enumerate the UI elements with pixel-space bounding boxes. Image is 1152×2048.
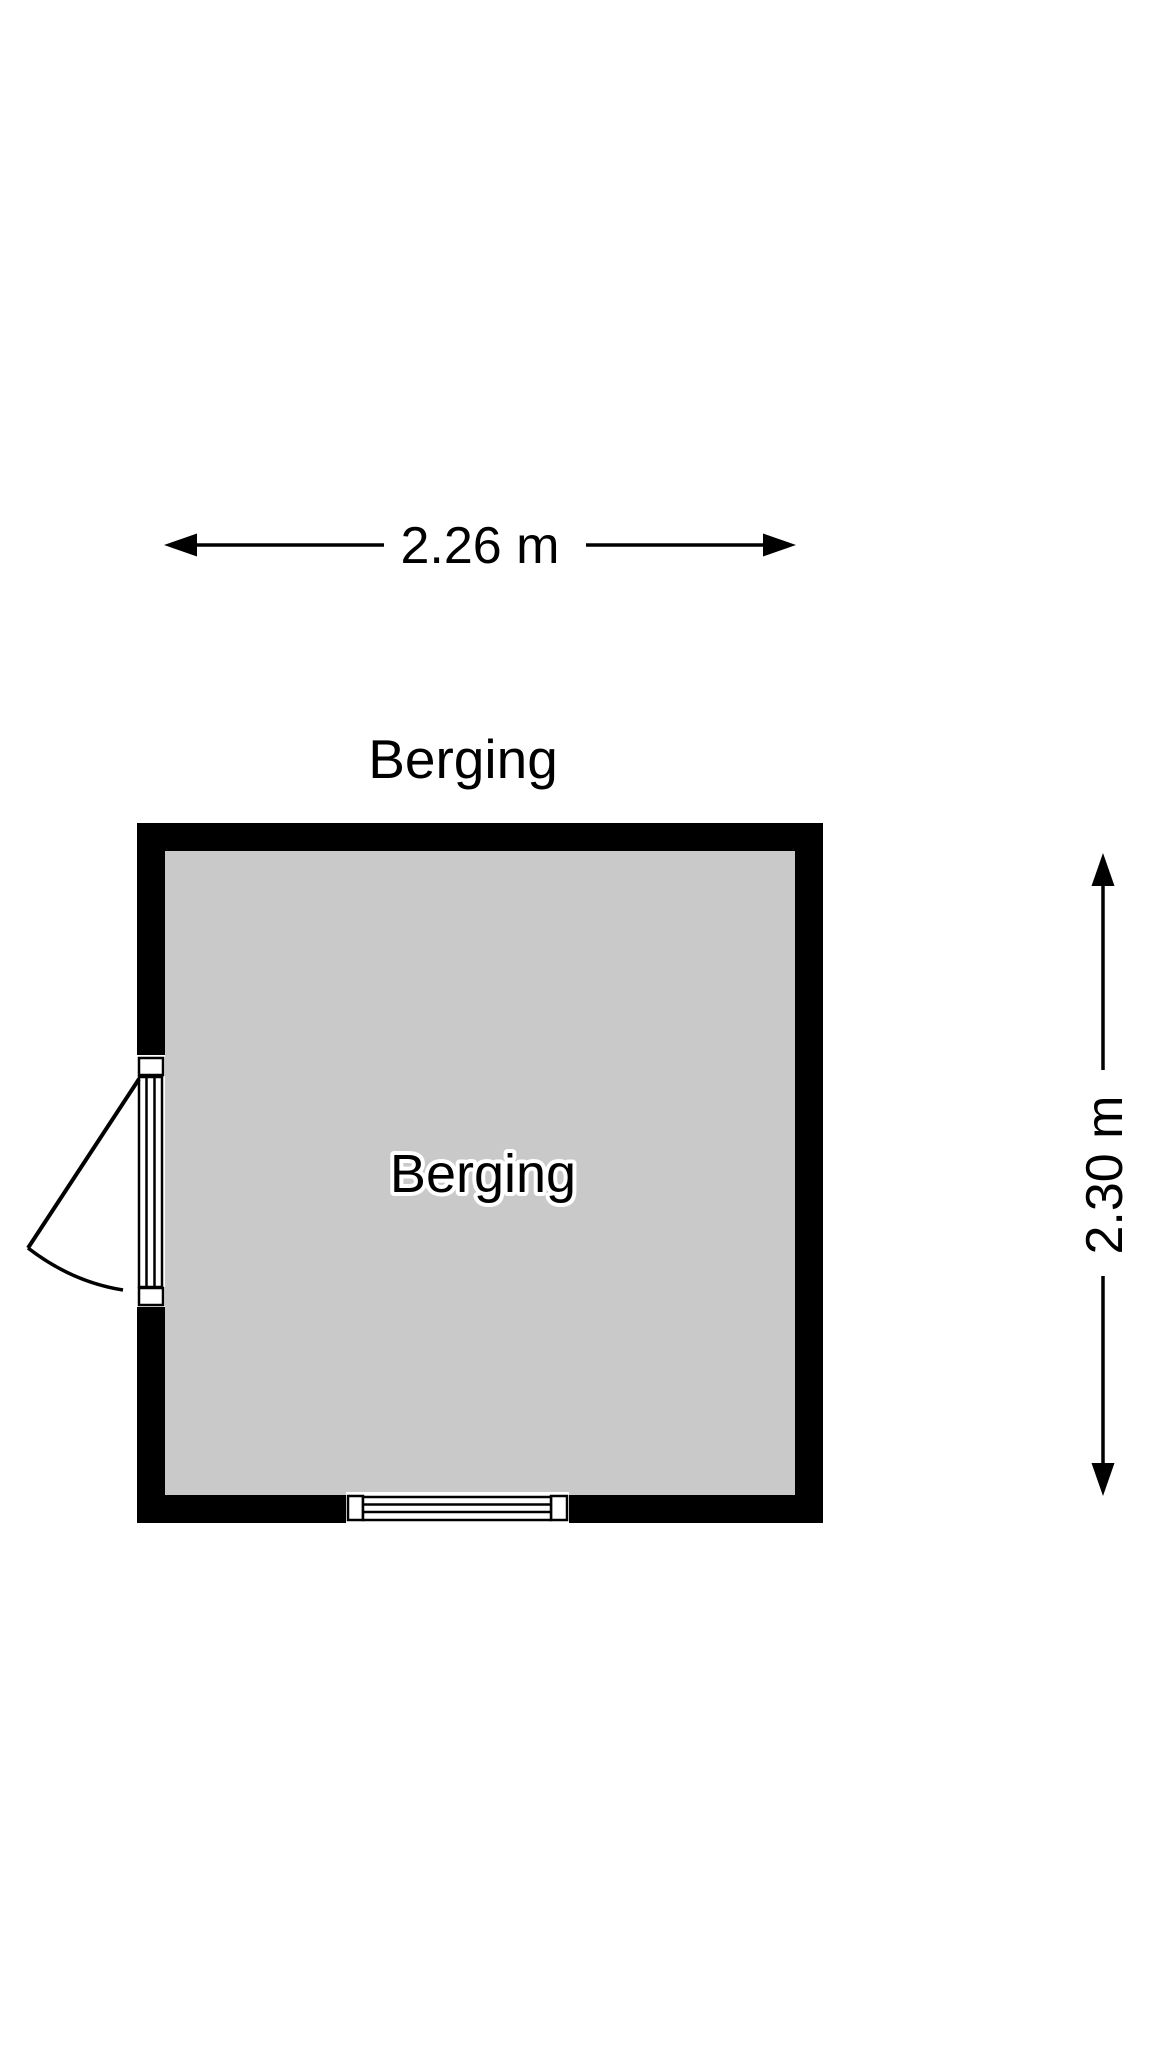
floorplan-canvas: 2.26 m 2.30 m Berging Berging	[0, 0, 1152, 2048]
height-dimension: 2.30 m	[1076, 853, 1134, 1496]
arrow-down-icon	[1092, 1463, 1115, 1496]
door-panel	[139, 1077, 162, 1287]
width-dimension: 2.26 m	[164, 517, 796, 575]
plan-title: Berging	[368, 728, 558, 790]
window-frame-cap-right	[551, 1496, 567, 1520]
door-frame-cap-bottom	[139, 1288, 163, 1305]
height-dimension-label: 2.30 m	[1076, 1096, 1134, 1255]
arrow-up-icon	[1092, 853, 1115, 886]
window	[346, 1492, 569, 1523]
window-glazing	[363, 1497, 551, 1520]
floorplan-page: 2.26 m 2.30 m Berging Berging	[0, 0, 1152, 2048]
door-swing-arc	[28, 1248, 123, 1290]
arrow-right-icon	[763, 534, 796, 557]
arrow-left-icon	[164, 534, 197, 557]
door-leaf	[28, 1079, 139, 1248]
door	[28, 1055, 165, 1307]
window-frame-cap-left	[348, 1496, 363, 1520]
door-frame-cap-top	[139, 1058, 163, 1075]
room-label: Berging	[390, 1144, 576, 1204]
width-dimension-label: 2.26 m	[401, 517, 560, 575]
